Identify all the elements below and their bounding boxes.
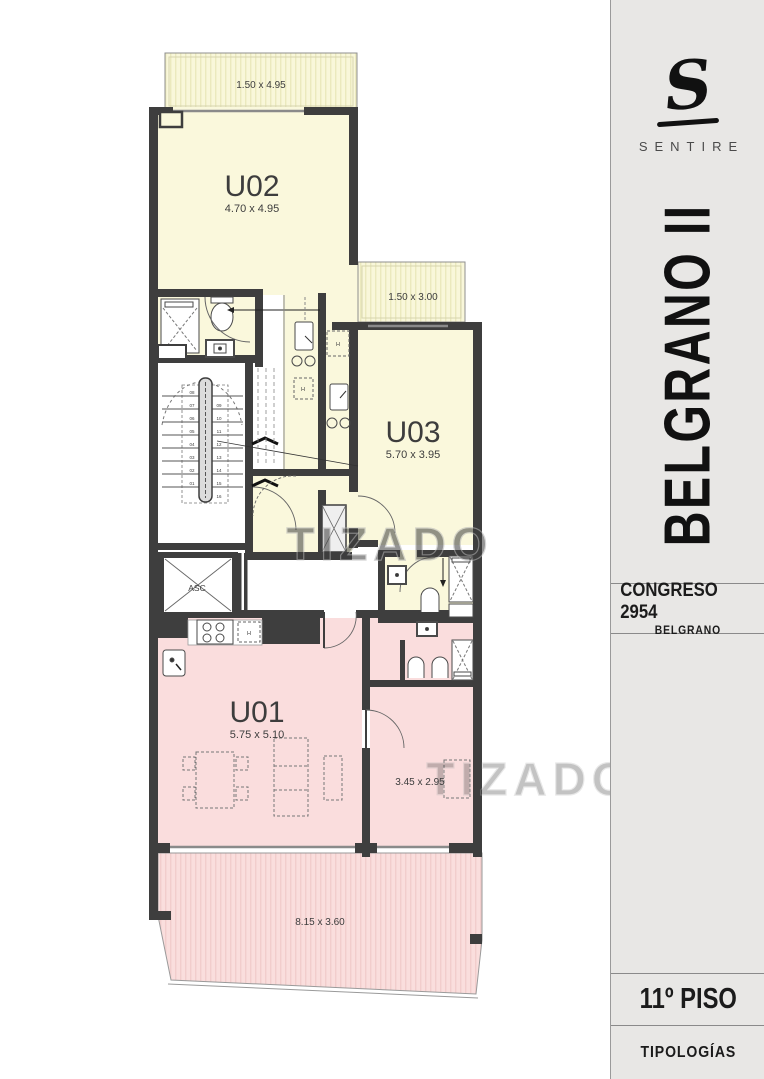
address-block: CONGRESO 2954 BELGRANO (611, 583, 764, 634)
balcony-u03-label: 1.50 x 3.00 (388, 292, 438, 303)
sentire-logo-icon: S (608, 44, 764, 126)
typology-label: TIPOLOGÍAS (640, 1044, 736, 1062)
closet-h-1: H (301, 387, 305, 393)
utility-box (158, 345, 186, 359)
address-neighborhood: BELGRANO (655, 625, 721, 637)
address-street: CONGRESO 2954 (620, 580, 756, 624)
closet-h-2: H (336, 342, 340, 348)
svg-text:06: 06 (189, 416, 195, 421)
unit-u02-label: U02 (224, 170, 279, 203)
svg-text:10: 10 (216, 416, 222, 421)
unit-u03-dims: 5.70 x 3.95 (386, 449, 440, 461)
svg-text:02: 02 (189, 468, 195, 473)
svg-text:TIZADO: TIZADO (426, 753, 633, 805)
svg-text:08: 08 (189, 390, 195, 395)
project-title-vertical: BELGRANO II (611, 180, 764, 570)
unit-u01-label: U01 (229, 696, 284, 729)
typology-block: TIPOLOGÍAS (611, 1025, 764, 1079)
svg-text:16: 16 (216, 494, 222, 499)
corner-room-floor (326, 262, 358, 322)
svg-text:15: 15 (216, 481, 222, 486)
svg-text:09: 09 (216, 403, 222, 408)
brand-logo: S SENTIRE (611, 52, 764, 154)
unit-u02-dims: 4.70 x 4.95 (225, 203, 279, 215)
svg-text:04: 04 (189, 442, 195, 447)
typology-sheet: TIZADO TIZADO TIZADO 1.50 x 4.95 U02 4.7… (0, 0, 764, 1079)
svg-text:05: 05 (189, 429, 195, 434)
terrace-dims: 8.15 x 3.60 (295, 917, 345, 928)
elevator-label: ASC (188, 583, 205, 593)
unit-u03-label: U03 (385, 416, 440, 449)
svg-text:11: 11 (217, 429, 222, 434)
svg-text:01: 01 (189, 481, 195, 486)
u02-entry-closet (160, 112, 182, 127)
bedroom-dims: 3.45 x 2.95 (395, 777, 445, 788)
svg-text:13: 13 (216, 455, 222, 460)
floor-label: 11º PISO (639, 983, 736, 1016)
svg-text:03: 03 (189, 455, 195, 460)
svg-text:07: 07 (189, 403, 195, 408)
floor-block: 11º PISO (611, 973, 764, 1025)
sidebar: S SENTIRE BELGRANO II CONGRESO 2954 BELG… (610, 0, 764, 1079)
svg-text:12: 12 (216, 442, 222, 447)
closet-h-3: H (247, 631, 251, 637)
svg-text:TIZADO: TIZADO (286, 518, 493, 570)
svg-text:14: 14 (216, 468, 222, 473)
unit-u01-dims: 5.75 x 5.10 (230, 729, 284, 741)
brand-name: SENTIRE (611, 139, 764, 154)
balcony-u02-label: 1.50 x 4.95 (236, 80, 286, 91)
